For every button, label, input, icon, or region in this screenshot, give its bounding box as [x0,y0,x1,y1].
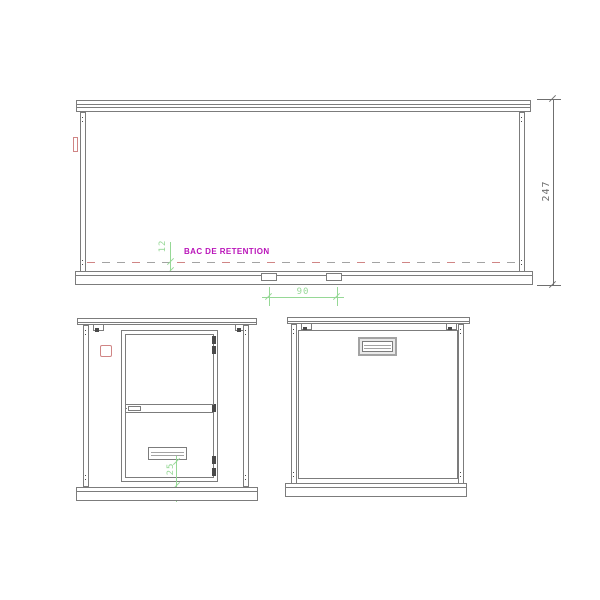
roof-clip-left [93,324,104,331]
cad-drawing-canvas: BAC DE RETENTION 12 90 247 [0,0,600,600]
dim-90-line [262,297,344,298]
corner-post-right [243,325,249,487]
corner-post-right [519,112,525,272]
base-rail [285,483,467,497]
corner-post-left [291,324,297,484]
retention-level-dashed-line [87,262,519,263]
dim-12-text: 12 [157,226,169,266]
roof-clip-left [301,323,312,330]
vent-inner-frame [362,341,393,352]
door-hinge-5 [212,468,216,476]
louver-slats [364,343,391,350]
dim-25-text: 25 [165,449,177,489]
dim-247-text: 247 [541,171,553,211]
corner-post-left [83,325,89,487]
door-handle [128,406,141,411]
door-handle-pin [125,408,127,409]
roof-clip-right [446,323,457,330]
retention-label: BAC DE RETENTION [184,247,270,256]
door-hinge-4 [212,456,216,464]
dim-90-text: 90 [290,286,316,296]
base-slot-right [326,273,342,281]
base-rail [76,487,258,501]
base-slot-left [261,273,277,281]
rear-louver-vent [358,337,397,356]
door-hinge-1 [212,336,216,344]
dim-247-line [553,99,554,286]
corner-post-right [458,324,464,484]
door-hinge-marker [73,137,78,152]
base-rail [75,271,533,285]
door-hinge-2 [212,346,216,354]
roof-rail [76,100,531,112]
corner-post-left [80,112,86,272]
roof-rail [77,318,257,325]
label-plate-marker [100,345,112,357]
roof-rail [287,317,470,324]
